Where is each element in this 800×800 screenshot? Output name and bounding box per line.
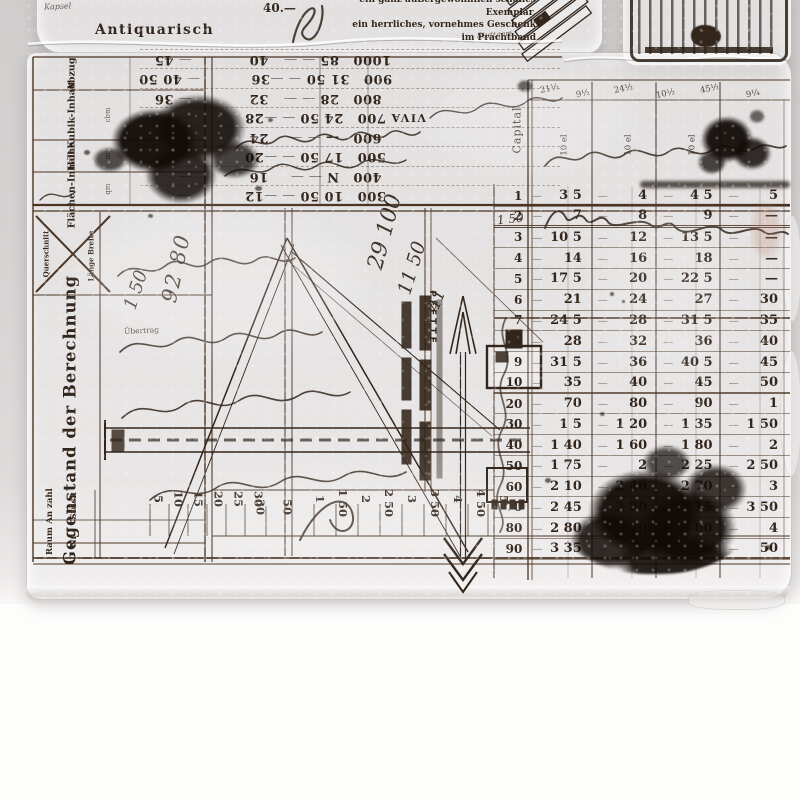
- flipped-cell: 10 50: [264, 188, 343, 203]
- row-index: 30: [494, 417, 528, 431]
- nr-label: Nr: [69, 535, 79, 547]
- header-mark: 10½: [655, 87, 676, 101]
- rate-cell: 1 50: [725, 417, 790, 432]
- gloss-highlight: [600, 210, 740, 380]
- ink-speckle: [268, 118, 273, 122]
- product-photo: Kapsel Antiquarisch 40.— ein ganz außerg…: [0, 0, 800, 800]
- rate-cell: 24 5: [528, 313, 593, 328]
- rate-table-row: 10 35 40 45 50: [494, 373, 790, 394]
- header-mark: 45½: [699, 82, 720, 96]
- flipped-cell: 36: [206, 71, 270, 86]
- rate-cell: 4: [594, 188, 659, 203]
- ink-mark: [691, 25, 721, 47]
- rate-cell: 35: [528, 375, 593, 390]
- rate-cell: 17 5: [528, 271, 593, 286]
- flipped-cell: 17 50: [264, 149, 343, 164]
- viva-label: VIVA: [390, 111, 426, 124]
- anzahl-label: An zahl: [45, 488, 55, 523]
- ink-speckle: [600, 412, 605, 416]
- rate-cell: 1: [725, 396, 790, 411]
- flipped-cell: 28: [268, 91, 339, 106]
- flipped-cell: 900: [350, 71, 466, 86]
- rate-cell: 10 5: [528, 230, 593, 245]
- gegenstand-label: Gegenstand der Berechnung: [61, 275, 80, 565]
- frame-bottom-bar: [645, 47, 773, 53]
- rate-cell: 5: [725, 188, 790, 203]
- ink-speckle: [545, 478, 551, 483]
- price-label: 40.—: [263, 1, 296, 15]
- flipped-cell: 45: [140, 52, 198, 67]
- row-index: 20: [494, 397, 528, 411]
- row-index: 4: [494, 251, 528, 265]
- flipped-cell: 85: [268, 52, 339, 67]
- flipped-cell: 400: [339, 169, 465, 184]
- ink-speckle: [610, 292, 614, 296]
- rate-cell: 3 5: [528, 188, 593, 203]
- rate-cell: 31 5: [528, 355, 593, 370]
- rate-cell: 28: [528, 334, 593, 349]
- rate-cell: 1 5: [528, 417, 593, 432]
- rate-table-row: 20 70 80 90 1: [494, 394, 790, 415]
- rate-cell: 21: [528, 292, 593, 307]
- ink-blot-small: [512, 76, 538, 96]
- rate-cell: 7: [528, 208, 593, 223]
- banner-title: Antiquarisch: [95, 22, 214, 38]
- rate-table-row: 1 3 5 4 4 5 5: [494, 186, 790, 207]
- row-index: 9: [494, 355, 528, 369]
- row-index: 90: [494, 542, 528, 556]
- flipped-cell: 31 50: [270, 71, 349, 86]
- rate-cell: 40: [594, 375, 659, 390]
- row-index: 8: [494, 334, 528, 348]
- rate-cell: 50: [725, 375, 790, 390]
- flipped-cell: 24 50: [264, 110, 343, 125]
- row-index: 5: [494, 272, 528, 286]
- barred-frame-glyph: [630, 0, 788, 62]
- cross-cell-top-label: Querschnitt: [42, 231, 51, 278]
- unit-label: 10 el: [624, 134, 634, 155]
- gloss-highlight: [80, 210, 360, 350]
- ink-speckle: [622, 300, 625, 303]
- flipped-cell: 1000: [339, 52, 465, 67]
- ink-blot-top-right: [682, 98, 782, 190]
- raum-label: Raum: [45, 527, 55, 555]
- stueck-label: Stück: [69, 492, 79, 519]
- banner-partial-word: Kapsel: [44, 2, 72, 12]
- ink-speckle: [84, 150, 90, 155]
- rate-cell: 80: [594, 396, 659, 411]
- ink-speckle: [148, 214, 153, 218]
- rate-cell: 45: [725, 355, 790, 370]
- row-index: 40: [494, 438, 528, 452]
- row-index: 7: [494, 313, 528, 327]
- flipped-table-row: 1000 85 40 45: [140, 49, 560, 69]
- ink-speckle: [765, 545, 771, 550]
- rate-cell: 40: [725, 334, 790, 349]
- column-header-label: Flächen-Inhalt: [67, 149, 78, 228]
- column-header-label: Kubik-Inhalt: [67, 81, 78, 149]
- banner-line: ein ganz außergewöhnlich schönes Exempla…: [330, 0, 536, 19]
- pink-smudge: [752, 205, 780, 257]
- row-index: 10: [494, 375, 528, 389]
- row-index: 1: [494, 189, 528, 203]
- row-index: 50: [494, 459, 528, 473]
- rate-cell: 14: [528, 251, 593, 266]
- rate-cell: 4 5: [659, 188, 724, 203]
- row-index: 6: [494, 293, 528, 307]
- flipped-cell: N: [268, 169, 339, 184]
- rate-cell: 90: [659, 396, 724, 411]
- flipped-cell: 40: [198, 52, 269, 67]
- handwritten-number: 1 50: [496, 211, 524, 228]
- ink-speckle: [255, 186, 262, 191]
- flipped-cell: —: [268, 130, 339, 145]
- ink-streak: [640, 181, 790, 188]
- ink-blot-left: [92, 84, 270, 210]
- header-mark: 9¼: [745, 88, 760, 101]
- rate-cell: 70: [528, 396, 593, 411]
- gloss-highlight: [150, 470, 530, 560]
- row-index: 3: [494, 230, 528, 244]
- flipped-cell: 500: [343, 149, 465, 164]
